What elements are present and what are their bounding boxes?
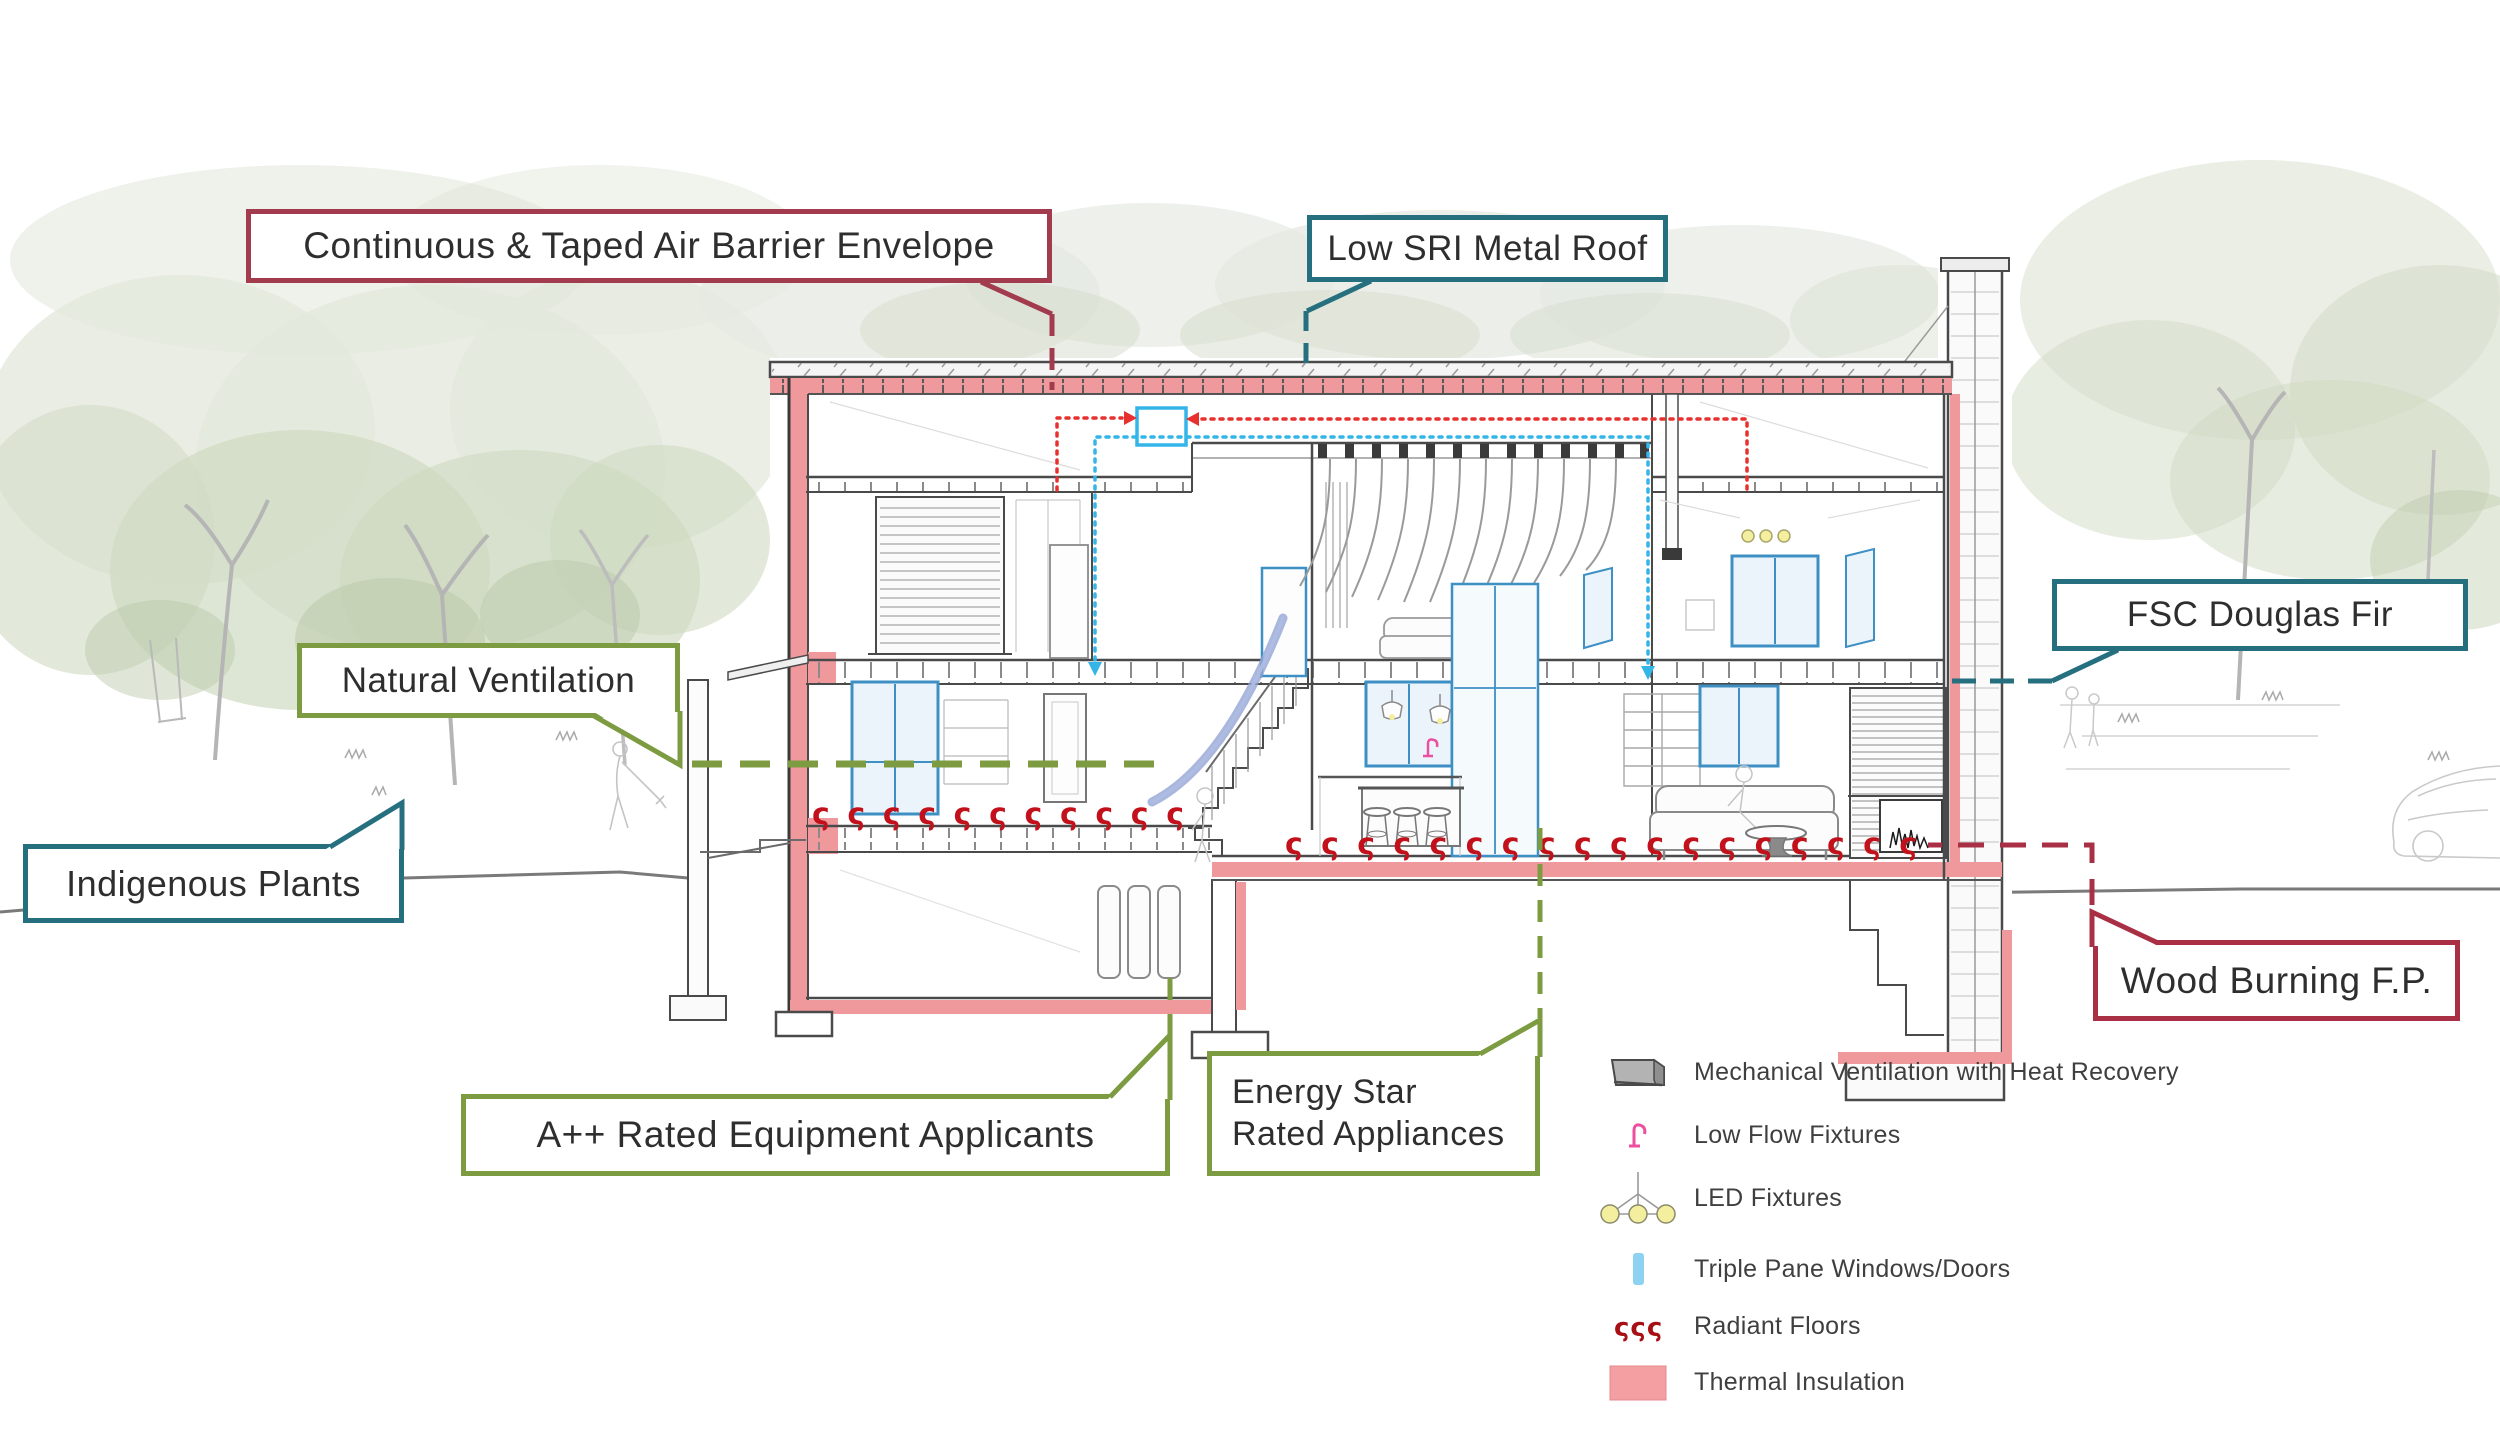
legend-row: Low Flow Fixtures xyxy=(1594,1107,2424,1163)
radiant-floor-row: ςςςςςςςςςςςςςςςςςς xyxy=(1285,827,1935,862)
legend-label: LED Fixtures xyxy=(1694,1170,1842,1226)
callout-energy-star: Energy Star Rated Appliances xyxy=(1207,1051,1540,1176)
legend-label: Mechanical Ventilation with Heat Recover… xyxy=(1694,1044,2179,1100)
callout-air-barrier: Continuous & Taped Air Barrier Envelope xyxy=(246,209,1052,283)
callout-a-plus-equipment: A++ Rated Equipment Applicants xyxy=(461,1094,1170,1176)
callout-label: A++ Rated Equipment Applicants xyxy=(536,1114,1094,1156)
callout-label: Wood Burning F.P. xyxy=(2121,960,2433,1002)
radiant-floor-icon: ςςς xyxy=(1594,1298,1682,1354)
led-light xyxy=(1742,530,1754,542)
patio-lines xyxy=(2060,705,2340,769)
radiant-floor-row: ςςςςςςςςςςς xyxy=(812,797,1202,832)
legend-row: Triple Pane Windows/Doors xyxy=(1594,1241,2424,1297)
angled-window xyxy=(1846,549,1874,647)
callout-label: FSC Douglas Fir xyxy=(2127,595,2393,635)
legend-row: Mechanical Ventilation with Heat Recover… xyxy=(1594,1044,2424,1100)
second-floor-band xyxy=(806,660,1944,684)
car-sketch xyxy=(2393,766,2500,861)
legend-row: Thermal Insulation xyxy=(1594,1354,2424,1410)
door-upper xyxy=(1050,545,1088,658)
callout-fsc-douglas-fir: FSC Douglas Fir xyxy=(2052,579,2468,651)
legend-label: Radiant Floors xyxy=(1694,1298,1861,1354)
window-pane-icon xyxy=(1594,1241,1682,1297)
angled-window xyxy=(1584,568,1612,648)
porch-post xyxy=(688,680,708,996)
door-main xyxy=(1044,694,1086,802)
legend-label: Low Flow Fixtures xyxy=(1694,1107,1901,1163)
callout-label: Low SRI Metal Roof xyxy=(1327,229,1647,269)
callout-label: Natural Ventilation xyxy=(342,661,636,701)
legend-label: Triple Pane Windows/Doors xyxy=(1694,1241,2010,1297)
callout-label-line2: Rated Appliances xyxy=(1232,1114,1505,1155)
porch-footing xyxy=(670,996,726,1020)
mechanical-tanks xyxy=(1098,886,1180,978)
legend-row: ςςς Radiant Floors xyxy=(1594,1298,2424,1354)
led-light xyxy=(1778,530,1790,542)
callout-wood-burning-fp: Wood Burning F.P. xyxy=(2093,940,2460,1021)
legend: Mechanical Ventilation with Heat Recover… xyxy=(1594,1036,2424,1416)
floor-insulation xyxy=(1212,862,2002,877)
legend-row: LED Fixtures xyxy=(1594,1170,2424,1226)
hrv-unit xyxy=(1137,408,1186,445)
chimney-insulation xyxy=(1950,394,1960,866)
legend-label: Thermal Insulation xyxy=(1694,1354,1905,1410)
led-light xyxy=(1760,530,1772,542)
gardener-figure xyxy=(610,742,666,830)
callout-label-line1: Energy Star xyxy=(1232,1072,1505,1113)
footing-left xyxy=(776,1012,832,1036)
foundation-wall xyxy=(1212,880,1236,1032)
svg-text:ςςς: ςςς xyxy=(1614,1313,1663,1343)
window-shade xyxy=(880,501,1000,650)
callout-indigenous-plants: Indigenous Plants xyxy=(23,844,404,923)
roof xyxy=(770,362,1952,394)
picture-frame xyxy=(1686,600,1714,630)
led-chandelier-icon xyxy=(1594,1170,1682,1226)
people-right xyxy=(2064,687,2099,748)
faucet-icon xyxy=(1594,1107,1682,1163)
underslab-insulation xyxy=(790,1000,1230,1014)
diagram-canvas: ςςςςςςςςςςς ςςςςςςςςςςςςςςςςςς Continuou… xyxy=(0,0,2500,1437)
insulation-icon xyxy=(1594,1354,1682,1410)
callout-label: Continuous & Taped Air Barrier Envelope xyxy=(303,225,994,267)
callout-label: Indigenous Plants xyxy=(66,863,361,905)
callout-low-sri: Low SRI Metal Roof xyxy=(1307,215,1668,282)
slat-screen xyxy=(1322,482,1352,628)
house-section: ςςςςςςςςςςς ςςςςςςςςςςςςςςςςςς xyxy=(670,256,2012,1110)
hrv-unit-icon xyxy=(1594,1044,1682,1100)
grade-line-right xyxy=(1950,889,2500,893)
callout-natural-ventilation: Natural Ventilation xyxy=(297,643,680,718)
